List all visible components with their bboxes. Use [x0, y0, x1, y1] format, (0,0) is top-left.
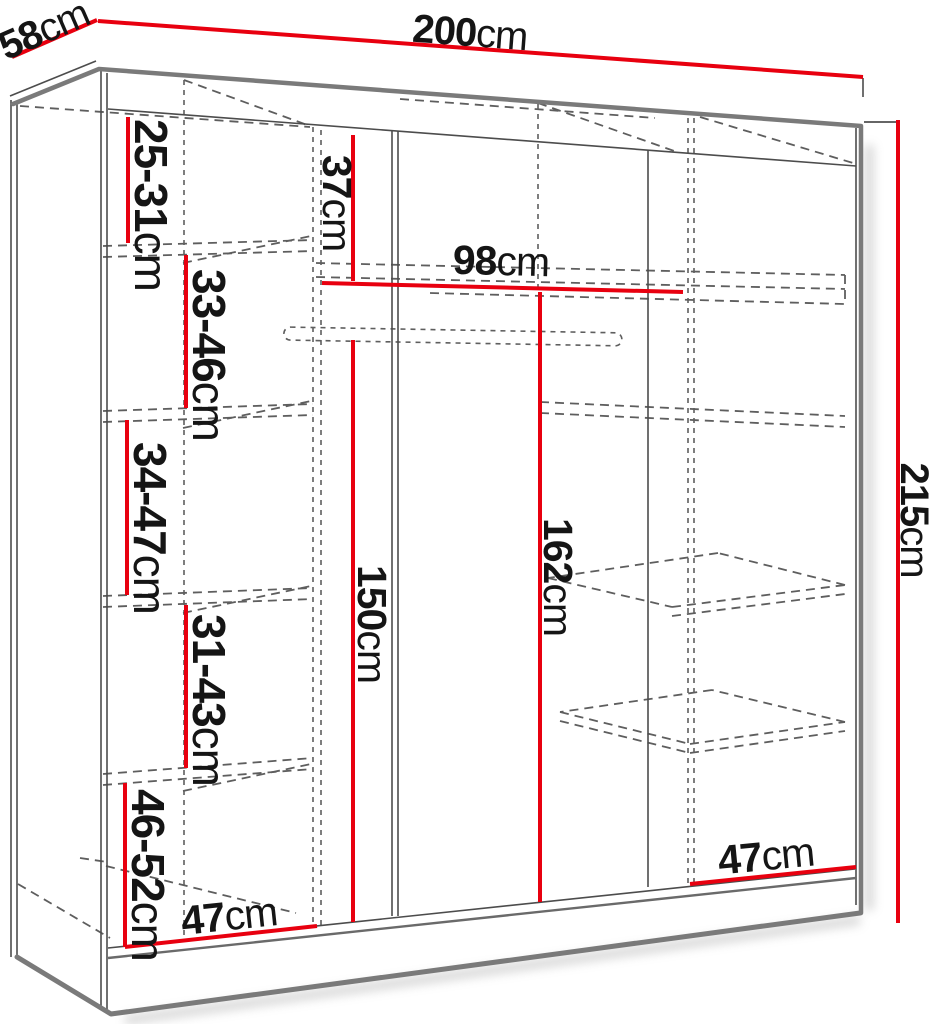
dim-line-rail-width	[322, 283, 683, 292]
hanging-rail	[284, 327, 622, 346]
dim-label-left-shelf-2: 33-46cm	[183, 269, 235, 441]
dim-label-bottom-right-depth: 47cm	[716, 828, 816, 883]
dim-label-left-shelf-3: 34-47cm	[124, 442, 176, 614]
dim-label-rail-width: 98cm	[452, 237, 549, 286]
dim-label-bottom-left-depth: 47cm	[179, 888, 280, 944]
dim-label-top-shelf: 37cm	[314, 155, 360, 251]
dim-label-left-shelf-4: 31-43cm	[183, 614, 235, 786]
dim-label-left-shelf-5: 46-52cm	[122, 789, 174, 961]
dim-label-height: 215cm	[892, 462, 932, 577]
dim-label-right-height: 162cm	[535, 518, 581, 636]
dim-label-hanging-height: 150cm	[349, 565, 395, 683]
dim-label-depth: 58cm	[0, 0, 96, 69]
diagram-svg: 58cm 200cm 215cm 25-31cm 33-46cm 34-47cm…	[0, 0, 932, 1024]
wardrobe-dimension-diagram: 58cm 200cm 215cm 25-31cm 33-46cm 34-47cm…	[0, 0, 932, 1024]
dim-label-left-shelf-1: 25-31cm	[125, 119, 177, 291]
dim-label-width: 200cm	[411, 7, 529, 60]
